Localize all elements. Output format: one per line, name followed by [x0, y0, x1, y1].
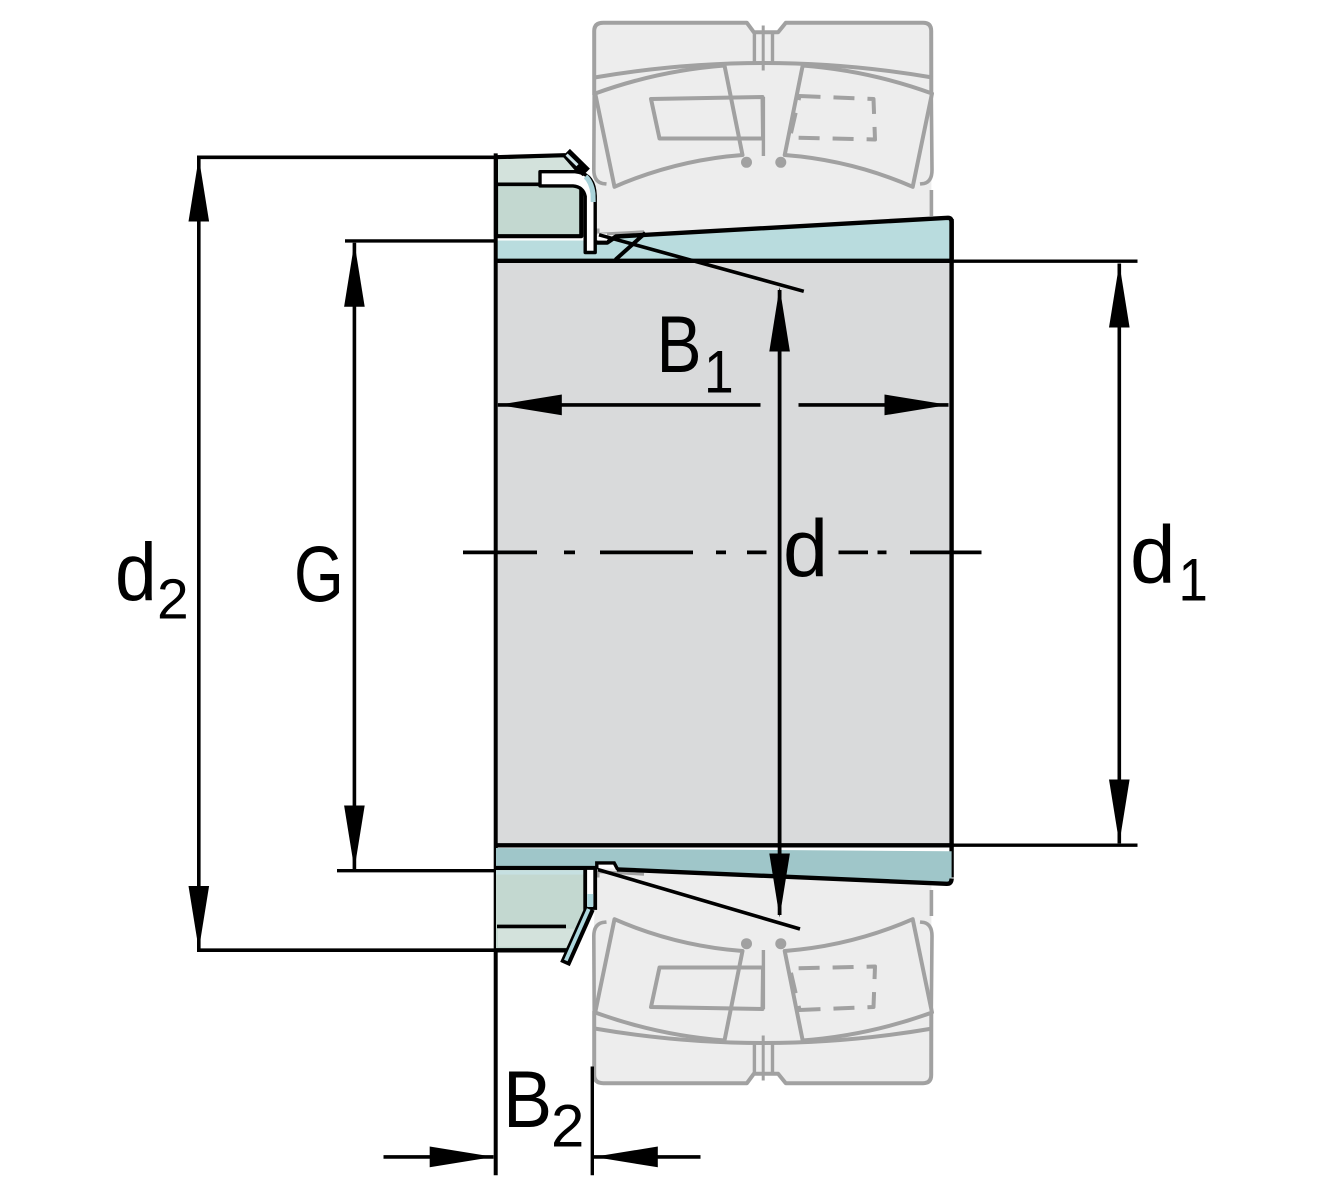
svg-text:d: d [783, 504, 828, 594]
svg-text:1: 1 [704, 339, 734, 406]
svg-text:B: B [657, 299, 702, 389]
svg-text:1: 1 [1179, 546, 1208, 613]
svg-text:d: d [115, 526, 157, 618]
svg-text:G: G [294, 531, 344, 619]
svg-text:d: d [1130, 509, 1176, 600]
svg-text:2: 2 [157, 568, 189, 632]
svg-text:B: B [503, 1055, 552, 1145]
svg-text:2: 2 [551, 1093, 584, 1160]
